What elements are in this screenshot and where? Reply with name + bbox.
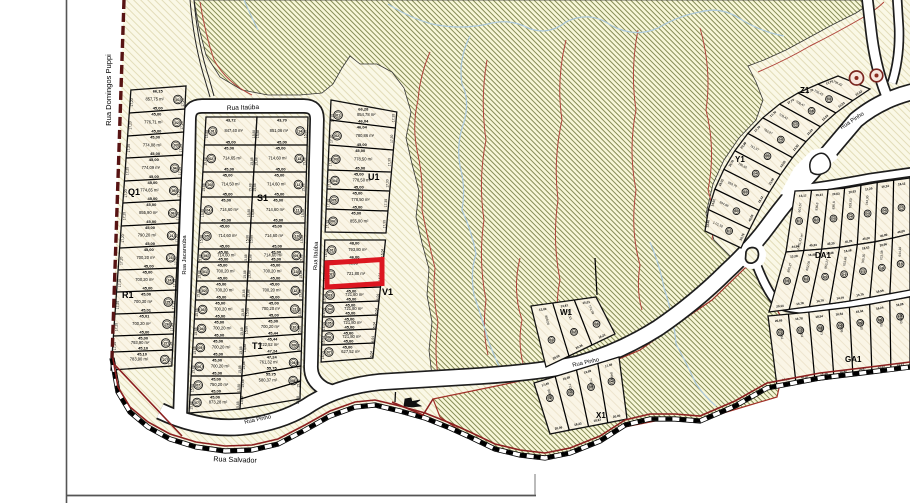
svg-text:T1: T1 (252, 341, 263, 351)
svg-text:15,88: 15,88 (256, 130, 260, 138)
svg-text:47,24: 47,24 (267, 348, 278, 353)
svg-text:17,30: 17,30 (327, 199, 331, 207)
svg-text:12: 12 (293, 289, 297, 293)
svg-text:700,20 m²: 700,20 m² (136, 255, 155, 260)
svg-text:43,70: 43,70 (277, 118, 288, 123)
svg-text:V1: V1 (382, 287, 393, 297)
svg-text:15,88: 15,88 (194, 327, 198, 335)
svg-text:45,00: 45,00 (216, 294, 227, 299)
svg-text:Rua Itaúba: Rua Itaúba (227, 104, 260, 112)
svg-text:45,00: 45,00 (226, 139, 237, 144)
svg-text:700,20 m²: 700,20 m² (216, 269, 235, 274)
svg-text:17,20: 17,20 (118, 279, 122, 287)
svg-text:07: 07 (327, 350, 331, 354)
svg-text:45,00: 45,00 (224, 146, 235, 151)
svg-text:45,00: 45,00 (271, 250, 282, 255)
svg-text:Rua Domingos Puppi: Rua Domingos Puppi (104, 54, 113, 126)
svg-text:15,37: 15,37 (816, 193, 824, 197)
svg-text:17,30: 17,30 (383, 220, 387, 228)
svg-text:700,20 m²: 700,20 m² (132, 321, 151, 326)
svg-text:45,00: 45,00 (218, 256, 229, 261)
svg-text:21: 21 (170, 234, 174, 238)
svg-text:45,00: 45,00 (212, 370, 223, 375)
svg-text:45,01: 45,01 (141, 307, 152, 312)
svg-text:10: 10 (295, 234, 299, 238)
svg-text:45,23: 45,23 (809, 243, 817, 248)
svg-text:Y1: Y1 (735, 155, 745, 164)
svg-text:55,75: 55,75 (267, 365, 278, 370)
svg-text:45,00: 45,00 (276, 166, 287, 171)
svg-text:45,00: 45,00 (273, 198, 284, 203)
svg-text:DA1: DA1 (815, 251, 832, 260)
svg-text:790,20 m²: 790,20 m² (138, 233, 157, 238)
svg-text:45,00: 45,00 (217, 263, 228, 268)
svg-text:851,06 m²: 851,06 m² (270, 128, 289, 133)
svg-text:17,30: 17,30 (327, 179, 331, 187)
svg-text:714,50 m²: 714,50 m² (221, 182, 240, 187)
svg-text:774,65 m²: 774,65 m² (140, 188, 159, 193)
svg-text:08: 08 (785, 279, 789, 283)
svg-text:17,30: 17,30 (330, 135, 334, 143)
svg-text:45,00: 45,00 (352, 204, 363, 209)
svg-text:09: 09 (294, 254, 298, 258)
svg-text:45,00: 45,00 (151, 128, 162, 133)
svg-text:W1: W1 (560, 308, 573, 317)
svg-text:17,30: 17,30 (328, 158, 332, 166)
svg-text:07: 07 (794, 123, 798, 127)
svg-text:09: 09 (827, 97, 831, 101)
svg-text:45,00: 45,00 (221, 217, 232, 222)
svg-text:45,00: 45,00 (211, 377, 222, 382)
svg-text:17,20: 17,20 (169, 342, 173, 350)
svg-text:714,60 m²: 714,60 m² (268, 156, 287, 161)
svg-text:15,88: 15,88 (195, 308, 199, 316)
svg-text:15,88: 15,88 (298, 326, 302, 334)
svg-text:45,00: 45,00 (270, 263, 281, 268)
svg-text:Rua Salvador: Rua Salvador (213, 454, 257, 465)
svg-text:45,00: 45,00 (274, 191, 285, 196)
svg-text:15,88: 15,88 (250, 235, 254, 243)
svg-text:17,30: 17,30 (388, 158, 392, 166)
svg-text:45,00: 45,00 (149, 157, 160, 162)
svg-text:03: 03 (334, 158, 338, 162)
svg-text:01: 01 (330, 248, 334, 252)
svg-text:45,00: 45,00 (215, 301, 226, 306)
svg-text:15,88: 15,88 (189, 401, 193, 409)
svg-text:614,60: 614,60 (899, 314, 903, 324)
svg-text:X1: X1 (596, 411, 606, 420)
svg-text:17,20: 17,20 (176, 212, 180, 220)
svg-text:45,00: 45,00 (215, 313, 226, 318)
svg-text:15,88: 15,88 (193, 346, 197, 354)
svg-text:17,20: 17,20 (119, 257, 123, 265)
svg-text:45,00: 45,00 (269, 312, 280, 317)
svg-text:15,88: 15,88 (244, 326, 248, 334)
svg-text:20,63: 20,63 (832, 192, 840, 197)
svg-text:618,60: 618,60 (848, 198, 853, 208)
svg-text:45,00: 45,00 (268, 319, 279, 324)
svg-text:15,88: 15,88 (300, 235, 304, 243)
svg-text:46,04: 46,04 (357, 125, 368, 130)
svg-text:15,88: 15,88 (246, 289, 250, 297)
svg-text:03: 03 (832, 217, 836, 221)
svg-text:45,00: 45,00 (139, 329, 150, 334)
svg-text:45,01: 45,01 (139, 314, 150, 319)
svg-text:45,00: 45,00 (214, 332, 225, 337)
svg-text:16,04: 16,04 (370, 351, 374, 359)
svg-text:16,78: 16,78 (795, 316, 803, 321)
svg-text:45,00: 45,00 (145, 241, 156, 246)
svg-text:45,00: 45,00 (144, 263, 155, 268)
svg-text:793,80 m²: 793,80 m² (348, 247, 367, 252)
svg-text:15,88: 15,88 (247, 270, 251, 278)
svg-text:07: 07 (900, 206, 904, 210)
svg-text:45,00: 45,00 (217, 275, 228, 280)
svg-text:16,04: 16,04 (323, 294, 327, 302)
svg-text:45,00: 45,00 (224, 166, 235, 171)
svg-text:11: 11 (293, 307, 297, 311)
svg-text:17,20: 17,20 (130, 98, 134, 106)
svg-text:774,09 m²: 774,09 m² (142, 165, 161, 170)
svg-text:17,20: 17,20 (173, 279, 177, 287)
svg-text:45,00: 45,00 (270, 275, 281, 280)
svg-text:45,00: 45,00 (355, 165, 366, 170)
svg-text:700,20 m²: 700,20 m² (215, 288, 234, 293)
svg-text:05: 05 (172, 189, 176, 193)
svg-text:15,88: 15,88 (202, 183, 206, 191)
svg-text:15,88: 15,88 (251, 209, 255, 217)
svg-text:03: 03 (744, 190, 748, 194)
svg-text:13,28: 13,28 (790, 254, 798, 259)
svg-text:45,00: 45,00 (147, 180, 158, 185)
svg-text:15,88: 15,88 (241, 379, 245, 387)
svg-text:16,04: 16,04 (322, 308, 326, 316)
svg-text:17,20: 17,20 (168, 358, 172, 366)
svg-text:45,00: 45,00 (346, 296, 357, 301)
svg-text:774,08 m²: 774,08 m² (143, 142, 162, 147)
svg-text:26,66: 26,66 (775, 318, 783, 323)
svg-text:15,88: 15,88 (299, 270, 303, 278)
svg-text:783,90 m²: 783,90 m² (130, 357, 149, 362)
svg-text:45,00: 45,00 (269, 301, 280, 306)
svg-text:750,20 m²: 750,20 m² (210, 382, 229, 387)
svg-text:45,00: 45,00 (144, 247, 155, 252)
svg-text:16,04: 16,04 (373, 322, 377, 330)
svg-text:16,04: 16,04 (371, 336, 375, 344)
svg-text:43,72: 43,72 (226, 118, 237, 123)
svg-text:17,20: 17,20 (170, 323, 174, 331)
svg-text:45,00: 45,00 (357, 142, 368, 147)
svg-text:05: 05 (328, 321, 332, 325)
svg-text:34: 34 (842, 272, 846, 276)
svg-text:873,28 m²: 873,28 m² (209, 400, 228, 405)
svg-text:48,00: 48,00 (349, 241, 360, 246)
svg-text:17,30: 17,30 (392, 114, 396, 122)
svg-text:15,88: 15,88 (240, 396, 244, 404)
svg-text:23: 23 (169, 256, 173, 260)
svg-text:45,00: 45,00 (270, 282, 281, 287)
svg-text:02: 02 (335, 134, 339, 138)
svg-text:17,30: 17,30 (390, 135, 394, 143)
svg-text:47,24: 47,24 (267, 355, 278, 360)
svg-text:07: 07 (196, 383, 200, 387)
svg-text:45,00: 45,00 (153, 105, 164, 110)
svg-text:17,20: 17,20 (174, 257, 178, 265)
svg-text:15,88: 15,88 (297, 361, 301, 369)
svg-text:761,32 m²: 761,32 m² (259, 360, 278, 365)
svg-text:04: 04 (200, 327, 204, 331)
svg-text:15,88: 15,88 (301, 209, 305, 217)
svg-text:45,00: 45,00 (272, 224, 283, 229)
svg-text:45,00: 45,00 (210, 395, 221, 400)
svg-text:45,00: 45,00 (270, 294, 281, 299)
svg-text:17,20: 17,20 (180, 121, 184, 129)
svg-text:45,00: 45,00 (151, 112, 162, 117)
svg-text:17,20: 17,20 (121, 234, 125, 242)
svg-text:04: 04 (754, 172, 758, 176)
svg-text:17,20: 17,20 (122, 212, 126, 220)
svg-text:700,08: 700,08 (839, 323, 844, 333)
svg-text:04: 04 (328, 307, 332, 311)
svg-text:01: 01 (797, 219, 801, 223)
svg-text:15,88: 15,88 (300, 254, 304, 262)
svg-text:GA1: GA1 (845, 355, 862, 364)
svg-text:15,88: 15,88 (192, 365, 196, 373)
svg-text:45,00: 45,00 (274, 173, 285, 178)
svg-text:17,20: 17,20 (175, 234, 179, 242)
svg-text:847,40 m²: 847,40 m² (224, 128, 243, 133)
svg-text:66,28: 66,28 (358, 107, 369, 112)
svg-text:05: 05 (205, 234, 209, 238)
svg-text:700,20 m²: 700,20 m² (263, 269, 282, 274)
svg-text:15,88: 15,88 (198, 254, 202, 262)
svg-text:06: 06 (883, 209, 887, 213)
svg-text:03: 03 (201, 308, 205, 312)
svg-text:66,15: 66,15 (153, 89, 164, 94)
svg-text:03: 03 (595, 322, 599, 326)
svg-text:627,52 m²: 627,52 m² (341, 349, 360, 354)
svg-text:16,04: 16,04 (324, 249, 328, 257)
svg-text:05: 05 (198, 346, 202, 350)
svg-text:11: 11 (296, 208, 300, 212)
svg-text:714,60 m²: 714,60 m² (266, 207, 285, 212)
svg-text:02: 02 (209, 157, 213, 161)
svg-text:05: 05 (866, 212, 870, 216)
svg-text:02: 02 (572, 330, 576, 334)
svg-text:R1: R1 (122, 290, 134, 300)
svg-text:10: 10 (292, 325, 296, 329)
svg-text:700,20 m²: 700,20 m² (135, 277, 154, 282)
svg-text:721,80 m²: 721,80 m² (347, 271, 366, 276)
svg-text:13: 13 (297, 157, 301, 161)
svg-text:01: 01 (203, 270, 207, 274)
svg-text:45,00: 45,00 (213, 351, 224, 356)
svg-text:15,88: 15,88 (302, 157, 306, 165)
svg-text:45,00: 45,00 (150, 135, 161, 140)
svg-text:Z1: Z1 (800, 86, 810, 95)
svg-text:17,20: 17,20 (177, 189, 181, 197)
svg-text:15,88: 15,88 (297, 344, 301, 352)
svg-text:17,30: 17,30 (331, 114, 335, 122)
svg-text:26: 26 (165, 322, 169, 326)
svg-text:04: 04 (206, 208, 210, 212)
svg-text:714,60 m²: 714,60 m² (265, 233, 284, 238)
svg-text:45,00: 45,00 (146, 202, 157, 207)
svg-text:15,88: 15,88 (204, 157, 208, 165)
svg-text:09: 09 (804, 277, 808, 281)
svg-text:02: 02 (202, 289, 206, 293)
svg-text:700,30 m²: 700,30 m² (134, 299, 153, 304)
svg-text:01: 01 (176, 98, 180, 102)
svg-text:700,20 m²: 700,20 m² (211, 364, 230, 369)
svg-text:04: 04 (333, 179, 337, 183)
svg-text:45,00: 45,00 (346, 289, 357, 294)
svg-text:13: 13 (294, 270, 298, 274)
svg-text:16,04: 16,04 (376, 294, 380, 302)
svg-text:778,50 m²: 778,50 m² (354, 156, 373, 161)
svg-text:06: 06 (779, 138, 783, 142)
svg-text:836,8: 836,8 (831, 201, 836, 210)
svg-text:U1: U1 (368, 172, 380, 182)
svg-text:15: 15 (899, 262, 903, 266)
svg-text:17,20: 17,20 (181, 98, 185, 106)
svg-text:45,10: 45,10 (137, 352, 148, 357)
svg-text:17,20: 17,20 (127, 144, 131, 152)
svg-text:714,65 m²: 714,65 m² (223, 156, 242, 161)
svg-text:15,88: 15,88 (298, 289, 302, 297)
svg-text:769,01: 769,01 (819, 325, 824, 335)
svg-text:Rua Itaúba: Rua Itaúba (313, 241, 320, 270)
svg-text:45,10: 45,10 (138, 345, 149, 350)
svg-text:S1: S1 (257, 193, 268, 203)
svg-text:15,88: 15,88 (254, 157, 258, 165)
svg-text:01: 01 (336, 113, 340, 117)
svg-text:06: 06 (327, 335, 331, 339)
svg-text:17,20: 17,20 (171, 301, 175, 309)
svg-text:722,52 m²: 722,52 m² (260, 342, 279, 347)
svg-text:45,00: 45,00 (214, 320, 225, 325)
svg-text:45,00: 45,00 (145, 225, 156, 230)
svg-text:714,60 m²: 714,60 m² (267, 182, 286, 187)
svg-text:700,20 m²: 700,20 m² (212, 345, 231, 350)
svg-text:744,30: 744,30 (865, 195, 869, 205)
svg-text:45,00: 45,00 (150, 151, 161, 156)
svg-text:05: 05 (861, 269, 865, 273)
svg-text:17,20: 17,20 (128, 121, 132, 129)
svg-text:15,88: 15,88 (303, 130, 307, 138)
svg-text:45,00: 45,00 (344, 317, 355, 322)
svg-text:45,00: 45,00 (142, 285, 153, 290)
svg-text:700,20 m²: 700,20 m² (262, 288, 281, 293)
svg-text:Q1: Q1 (128, 187, 140, 197)
svg-text:714,60 m²: 714,60 m² (220, 207, 239, 212)
svg-text:16,04: 16,04 (322, 336, 326, 344)
svg-text:45,00: 45,00 (343, 331, 354, 336)
svg-text:700,10: 700,10 (859, 320, 863, 330)
svg-text:07: 07 (195, 401, 199, 405)
svg-text:25: 25 (823, 275, 827, 279)
svg-text:45,00: 45,00 (343, 338, 354, 343)
svg-text:45,00: 45,00 (277, 139, 288, 144)
svg-text:17,30: 17,30 (326, 220, 330, 228)
svg-text:700,20 m²: 700,20 m² (214, 307, 233, 312)
svg-text:45,00: 45,00 (355, 148, 366, 153)
svg-text:06: 06 (331, 220, 335, 224)
svg-text:45,00: 45,00 (271, 256, 282, 261)
svg-text:12: 12 (296, 183, 300, 187)
svg-text:714,60 m²: 714,60 m² (218, 233, 237, 238)
svg-text:15,88: 15,88 (296, 396, 300, 404)
svg-text:03: 03 (208, 183, 212, 187)
svg-text:45,00: 45,00 (342, 345, 353, 350)
svg-text:700,20 m²: 700,20 m² (262, 306, 281, 311)
svg-text:15,88: 15,88 (302, 183, 306, 191)
svg-text:854,78 m²: 854,78 m² (357, 112, 376, 117)
svg-text:16,04: 16,04 (374, 308, 378, 316)
svg-text:45,00: 45,00 (213, 339, 224, 344)
svg-text:700,30: 700,30 (879, 317, 883, 327)
svg-text:45,00: 45,00 (354, 172, 365, 177)
svg-text:46,04: 46,04 (358, 118, 369, 123)
svg-text:45,00: 45,00 (220, 224, 231, 229)
svg-text:857,75 m²: 857,75 m² (145, 97, 164, 102)
svg-text:09: 09 (292, 343, 296, 347)
svg-text:15,88: 15,88 (201, 209, 205, 217)
svg-text:17,20: 17,20 (116, 301, 120, 309)
svg-text:16,04: 16,04 (321, 351, 325, 359)
svg-text:45,00: 45,00 (142, 270, 153, 275)
svg-text:700,20 m²: 700,20 m² (261, 324, 280, 329)
svg-text:45,00: 45,00 (354, 184, 365, 189)
svg-text:06: 06 (171, 211, 175, 215)
svg-text:01: 01 (727, 229, 731, 233)
svg-text:27: 27 (163, 358, 167, 362)
svg-text:580,37 m²: 580,37 m² (259, 378, 278, 383)
svg-text:45,00: 45,00 (352, 191, 363, 196)
svg-text:45,00: 45,00 (345, 310, 356, 315)
svg-text:01: 01 (550, 338, 554, 342)
svg-text:45,00: 45,00 (273, 217, 284, 222)
svg-text:08: 08 (292, 361, 296, 365)
svg-text:45,00: 45,00 (138, 336, 149, 341)
svg-text:02: 02 (175, 121, 179, 125)
svg-text:15,88: 15,88 (197, 270, 201, 278)
svg-text:703,08: 703,08 (879, 250, 884, 260)
svg-text:02: 02 (815, 218, 819, 222)
svg-text:15,88: 15,88 (298, 308, 302, 316)
svg-text:700,20 m²: 700,20 m² (213, 326, 232, 331)
svg-text:Rua Jacareúba: Rua Jacareúba (182, 235, 188, 275)
svg-text:45,00: 45,00 (146, 219, 157, 224)
svg-text:06: 06 (197, 365, 201, 369)
svg-text:03: 03 (328, 293, 332, 297)
svg-text:55,75: 55,75 (266, 372, 277, 377)
svg-text:04: 04 (849, 214, 853, 218)
svg-text:17,20: 17,20 (178, 167, 182, 175)
svg-text:24: 24 (168, 278, 172, 282)
svg-text:45,00: 45,00 (149, 174, 160, 179)
svg-text:06: 06 (204, 254, 208, 258)
svg-text:45,00: 45,00 (212, 358, 223, 363)
svg-text:45,00: 45,00 (223, 191, 234, 196)
svg-text:45,44: 45,44 (267, 337, 278, 342)
svg-text:45,00: 45,00 (221, 198, 232, 203)
svg-text:15,88: 15,88 (191, 384, 195, 392)
svg-text:13: 13 (880, 266, 884, 270)
svg-text:14: 14 (298, 129, 302, 133)
svg-text:15,88: 15,88 (245, 308, 249, 316)
svg-text:15,88: 15,88 (296, 379, 300, 387)
